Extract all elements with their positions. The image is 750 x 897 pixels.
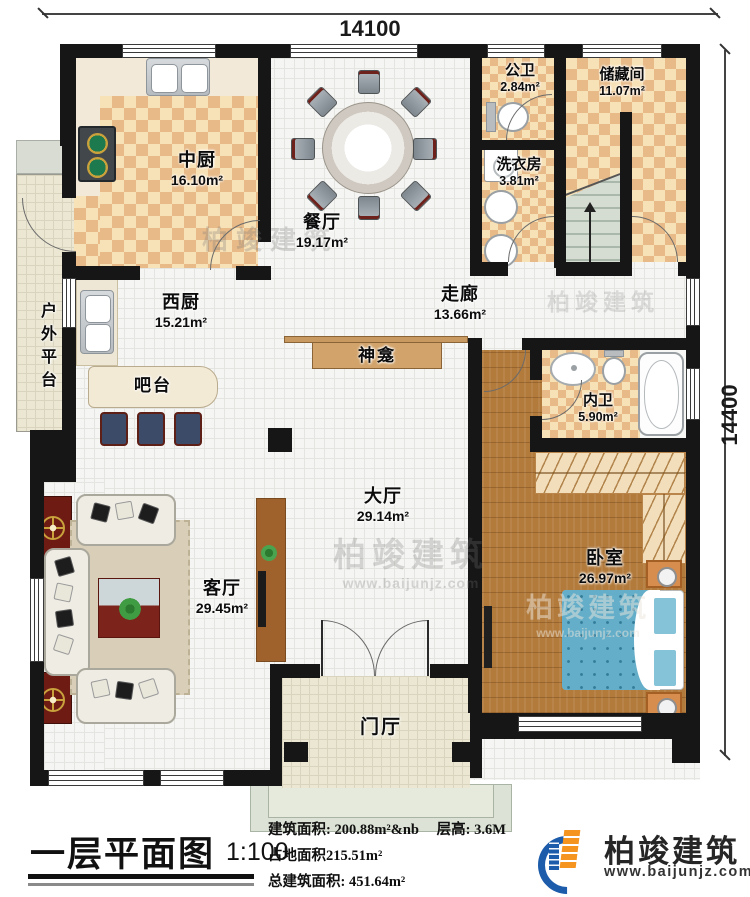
room-label-corridor: 走廊 13.66m² — [410, 284, 510, 323]
sofa-pillow — [55, 609, 74, 628]
stairs-arrow-shaft — [589, 212, 591, 262]
window-west-kitchen-left — [62, 278, 76, 328]
window-living-bottom-1 — [48, 770, 144, 786]
wall-corridor-top-1 — [470, 262, 508, 276]
title-underline-thick — [28, 874, 254, 879]
wall-bath-left — [470, 58, 482, 268]
closet-rail-right — [663, 494, 665, 564]
compass-decor-icon — [41, 516, 65, 540]
stats-line-1: 建筑面积: 200.88m²&nb 层高: 3.6M — [268, 818, 538, 844]
dining-chair — [291, 138, 315, 160]
coffee-table — [98, 578, 160, 638]
wall-kitchen-dining-divider — [258, 58, 271, 242]
wall-corridor-bottom — [522, 338, 686, 350]
faucet-dot — [571, 365, 577, 371]
room-label-laundry-room: 洗衣房 3.81m² — [484, 156, 554, 190]
private-toilet — [602, 357, 626, 385]
bedroom-tv — [484, 606, 492, 668]
bathtub — [638, 352, 684, 436]
sofa-pillow — [90, 678, 110, 698]
dimension-line-top — [42, 13, 718, 15]
wall-foyer-left — [270, 664, 282, 778]
bed-pillow — [652, 648, 678, 688]
sink-basin — [151, 64, 178, 93]
wall-left-upper — [60, 58, 76, 146]
sofa-pillow — [115, 501, 135, 521]
entry-step-inner — [268, 784, 494, 818]
room-label-dining-room: 餐厅 19.17m² — [272, 212, 372, 251]
west-kitchen-sink — [80, 290, 114, 354]
dining-chair — [358, 70, 380, 94]
stove-burner — [87, 157, 108, 178]
wall-privbath-bottom — [530, 438, 686, 452]
dimension-right-value: 14400 — [717, 383, 743, 447]
bathtub-inner — [644, 360, 679, 429]
kitchen-double-sink — [146, 58, 210, 96]
wall-storage-spine — [620, 112, 632, 264]
door-leaf-entry-left — [321, 620, 323, 676]
room-label-bedroom: 卧室 26.97m² — [555, 548, 655, 587]
private-toilet-tank — [604, 350, 624, 357]
stove — [78, 126, 116, 182]
room-label-hall: 大厅 29.14m² — [333, 486, 433, 525]
floor-chinese-kitchen-ext — [74, 196, 100, 268]
stairs-arrow-head — [584, 202, 596, 212]
wall-left-lower-2 — [30, 662, 44, 770]
room-label-shrine: 神龛 — [312, 346, 442, 367]
room-label-private-bathroom: 内卫 5.90m² — [566, 392, 630, 426]
sink-basin — [85, 324, 111, 352]
door-leaf-entry-right — [427, 620, 429, 676]
room-label-foyer: 门厅 — [341, 716, 421, 739]
stats-line-2: 占地面积215.51m² — [268, 844, 538, 870]
column-hall — [268, 428, 292, 452]
dining-chair — [413, 138, 437, 160]
window-living-bottom-2 — [160, 770, 224, 786]
stats-line-3: 总建筑面积: 451.64m² — [268, 870, 538, 896]
window-public-bath-top — [487, 44, 545, 58]
wall-storage-left — [554, 58, 566, 268]
wall-platform-1 — [62, 146, 76, 198]
compass-decor-icon — [41, 688, 65, 712]
toilet-tank — [486, 102, 496, 132]
window-storage-top — [582, 44, 662, 58]
plan-stats: 建筑面积: 200.88m²&nb 层高: 3.6M 占地面积215.51m² … — [268, 818, 538, 895]
wall-bath-laundry-divider — [482, 140, 554, 150]
sofa-pillow — [53, 582, 73, 602]
wall-hall-bedroom-divider — [468, 338, 482, 713]
bar-stool — [137, 412, 165, 446]
room-label-living-room: 客厅 29.45m² — [172, 578, 272, 617]
wall-privbath-left-1 — [530, 350, 542, 380]
room-label-outdoor-platform: 户外平台 — [32, 278, 56, 418]
plan-title: 一层平面图 — [30, 826, 215, 877]
room-label-bar: 吧台 — [88, 376, 218, 397]
wall-foyer-top-left — [282, 664, 320, 678]
wall-foyer-block-left — [284, 742, 308, 762]
wall-corner-bottom-right — [672, 737, 700, 763]
lamp — [657, 567, 677, 587]
window-kitchen-top — [122, 44, 216, 58]
wall-platform-bottom-block — [30, 430, 76, 482]
stove-burner — [87, 133, 108, 154]
dimension-top-value: 14100 — [320, 16, 420, 42]
wall-corridor-top-2 — [556, 262, 632, 276]
window-dining-top — [290, 44, 418, 58]
floor-plan-page: 中厨 16.10m² 餐厅 19.17m² 公卫 2.84m² 储藏间 11.0… — [0, 0, 750, 897]
room-label-public-bathroom: 公卫 2.84m² — [488, 62, 552, 96]
sofa-pillow — [115, 681, 134, 700]
window-bedroom-bottom — [518, 716, 642, 732]
room-label-western-kitchen: 西厨 15.21m² — [131, 292, 231, 331]
logo-building-blue — [549, 842, 559, 870]
window-living-left — [30, 578, 44, 662]
company-url: www.baijunjz.com — [604, 864, 750, 880]
table-plant — [119, 598, 141, 620]
bar-stool — [174, 412, 202, 446]
cabinet-plant — [261, 545, 277, 561]
wall-foyer-top-right — [430, 664, 470, 678]
sink-basin — [181, 64, 208, 93]
wall-privbath-left-2 — [530, 416, 542, 440]
bar-stool — [100, 412, 128, 446]
wall-left-lower-1 — [30, 482, 44, 578]
window-corridor-right — [686, 278, 700, 326]
title-underline-thin — [28, 883, 254, 886]
room-label-storage-room: 储藏间 11.07m² — [584, 66, 660, 100]
dining-table — [322, 102, 414, 194]
bed-pillow — [652, 596, 678, 636]
sink-basin — [85, 295, 111, 323]
closet-rail-top — [535, 472, 685, 474]
wall-foyer-block-right — [452, 742, 476, 762]
wall-platform-3 — [62, 328, 76, 432]
room-label-chinese-kitchen: 中厨 16.10m² — [147, 150, 247, 189]
window-bathtub-right — [686, 368, 700, 420]
company-logo-icon — [538, 828, 596, 886]
laundry-sink — [484, 190, 518, 224]
